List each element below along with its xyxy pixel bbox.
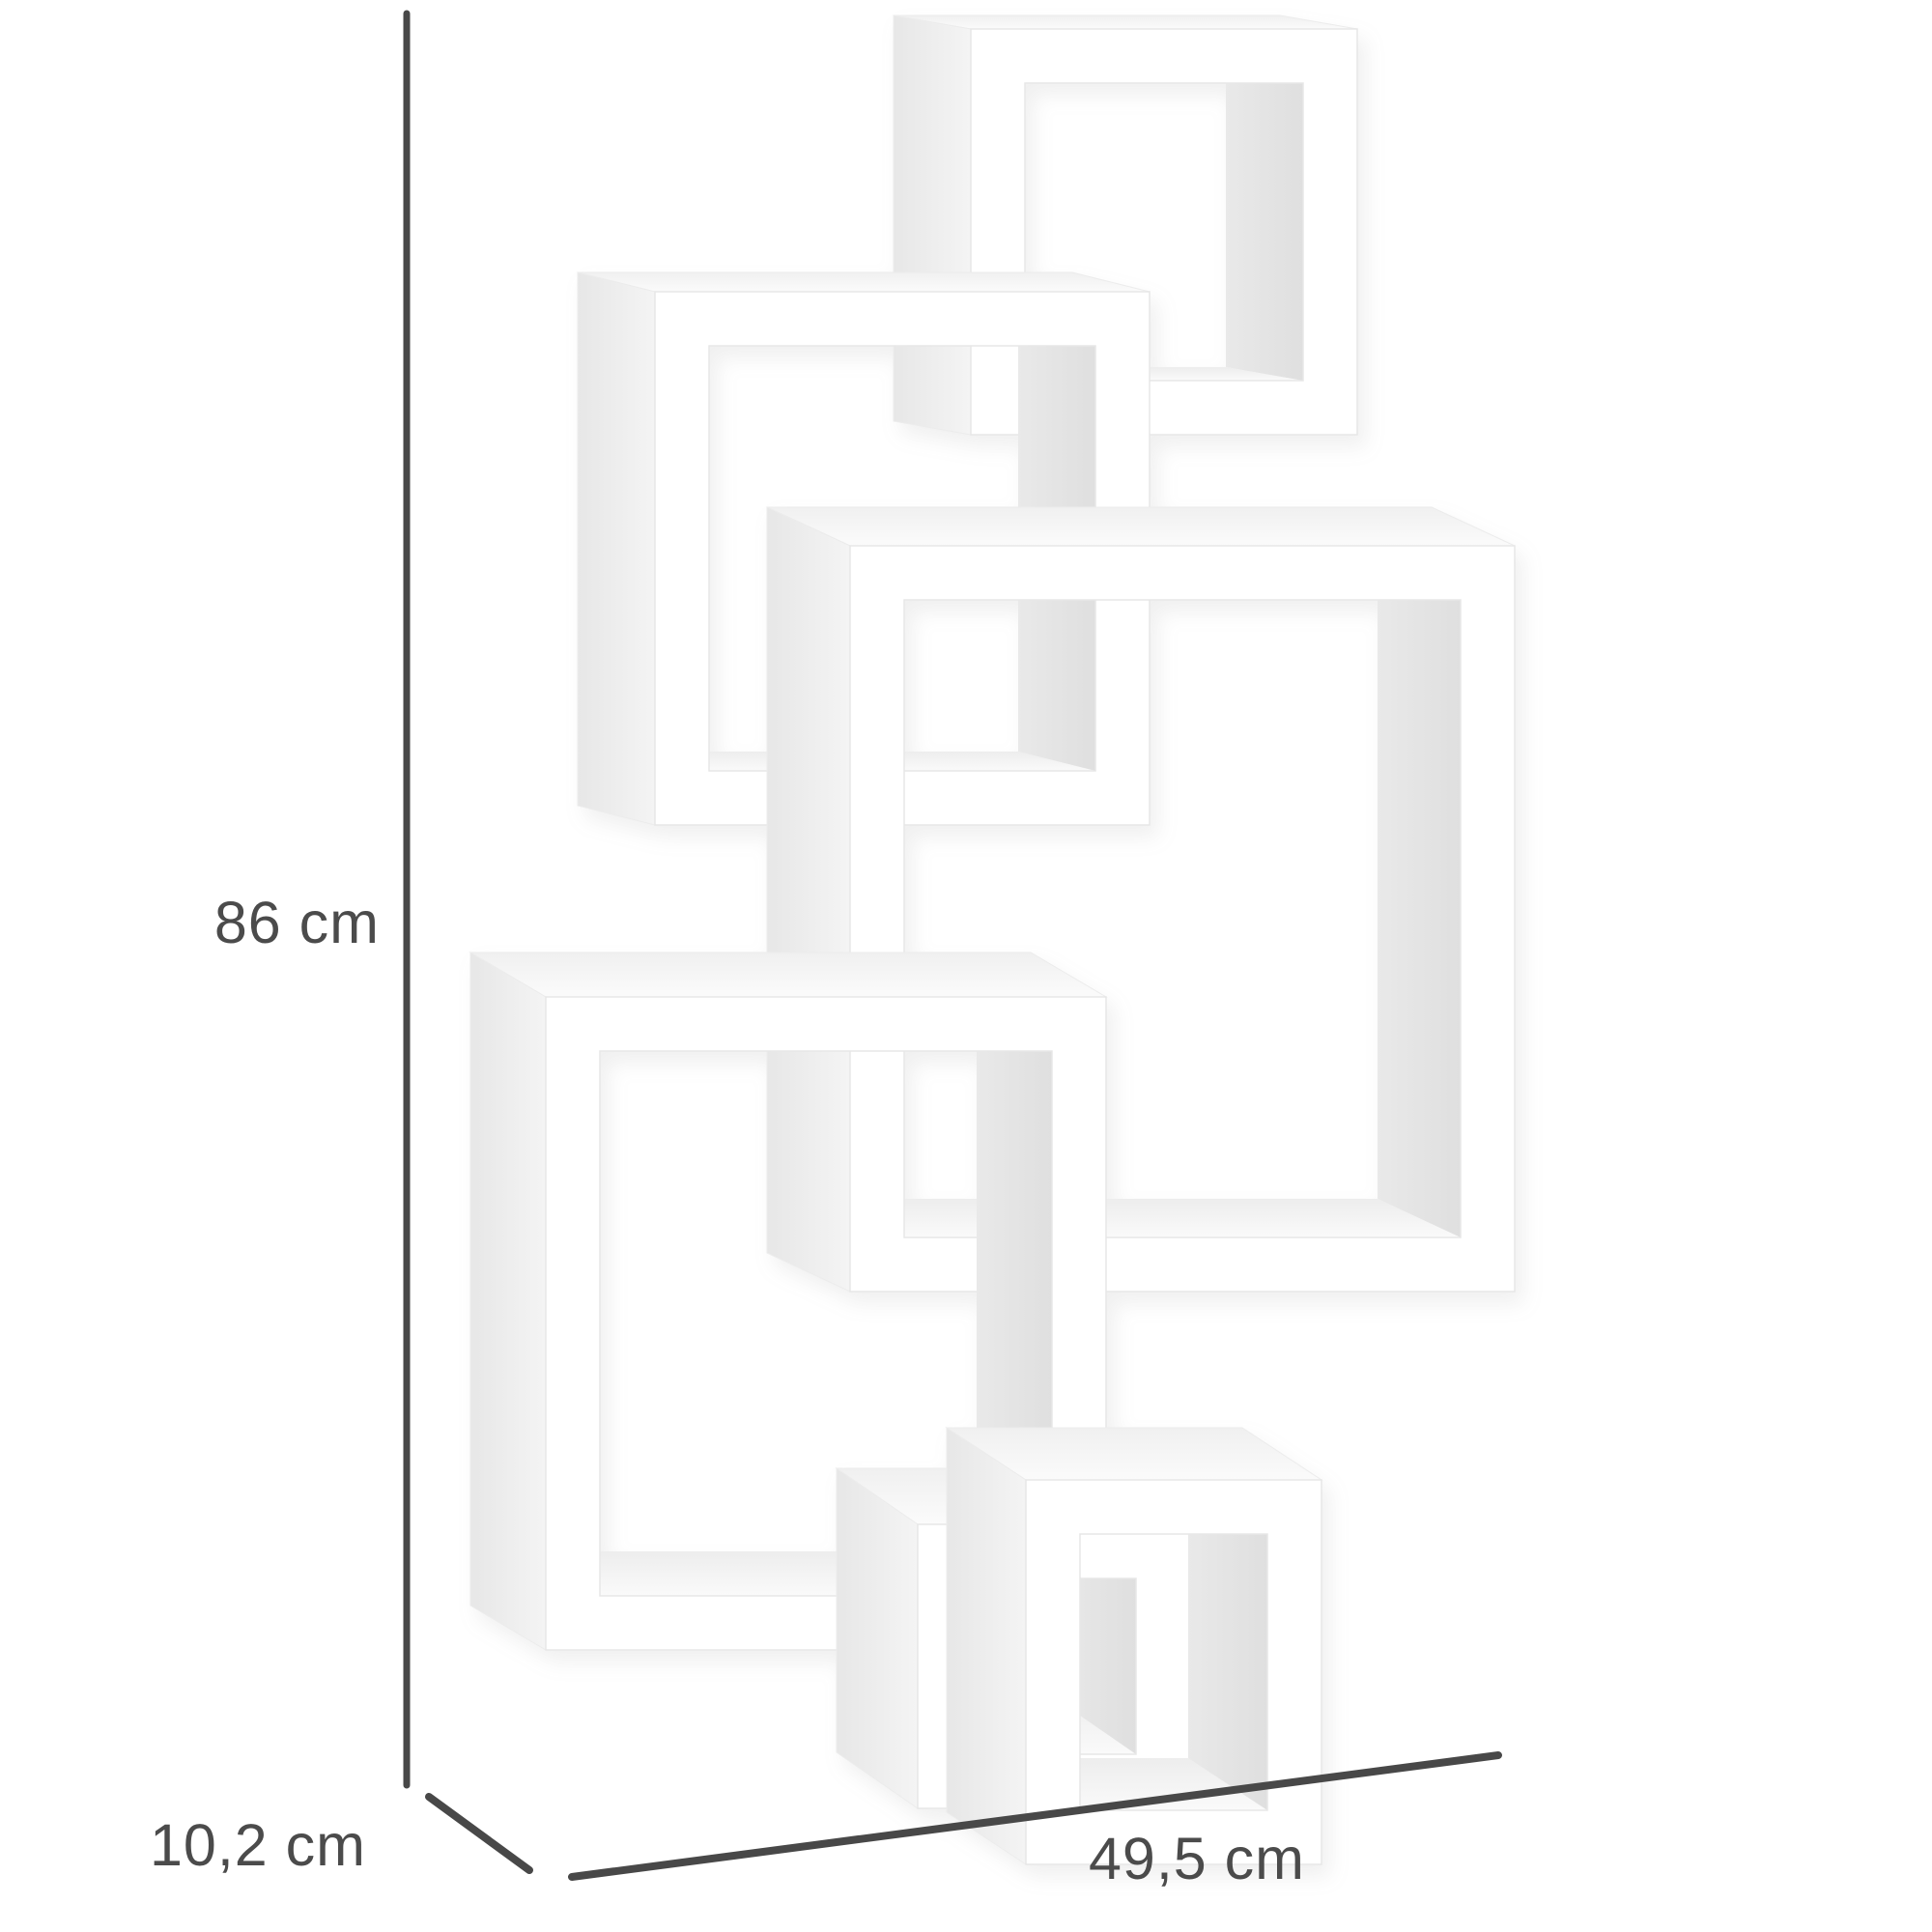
depth-dimension-line [429,1797,529,1870]
cube-top-face [767,507,1515,546]
cube-side-face [947,1428,1026,1864]
cube-inner-bottom-shelf [821,1199,1461,1237]
product-dimension-diagram: 86 cm 10,2 cm 49,5 cm [0,0,1932,1932]
cube-inner-right-wall [1226,70,1303,381]
cube-side-face [894,15,971,435]
diagram-canvas: 86 cm 10,2 cm 49,5 cm [0,0,1932,1932]
width-dimension-label: 49,5 cm [1089,1826,1305,1891]
cube-top-face [578,272,1150,292]
cube-inner-right-wall [1378,561,1461,1237]
cube-side-face [470,952,546,1650]
cube-side-face [578,272,655,825]
shelf-render [470,15,1515,1864]
depth-dimension-label: 10,2 cm [150,1812,366,1878]
cube-top-face [470,952,1106,997]
cube-side-face [767,507,850,1292]
cube-side-face [837,1468,918,1808]
height-dimension-label: 86 cm [214,890,380,955]
cube-top-face [894,15,1357,29]
